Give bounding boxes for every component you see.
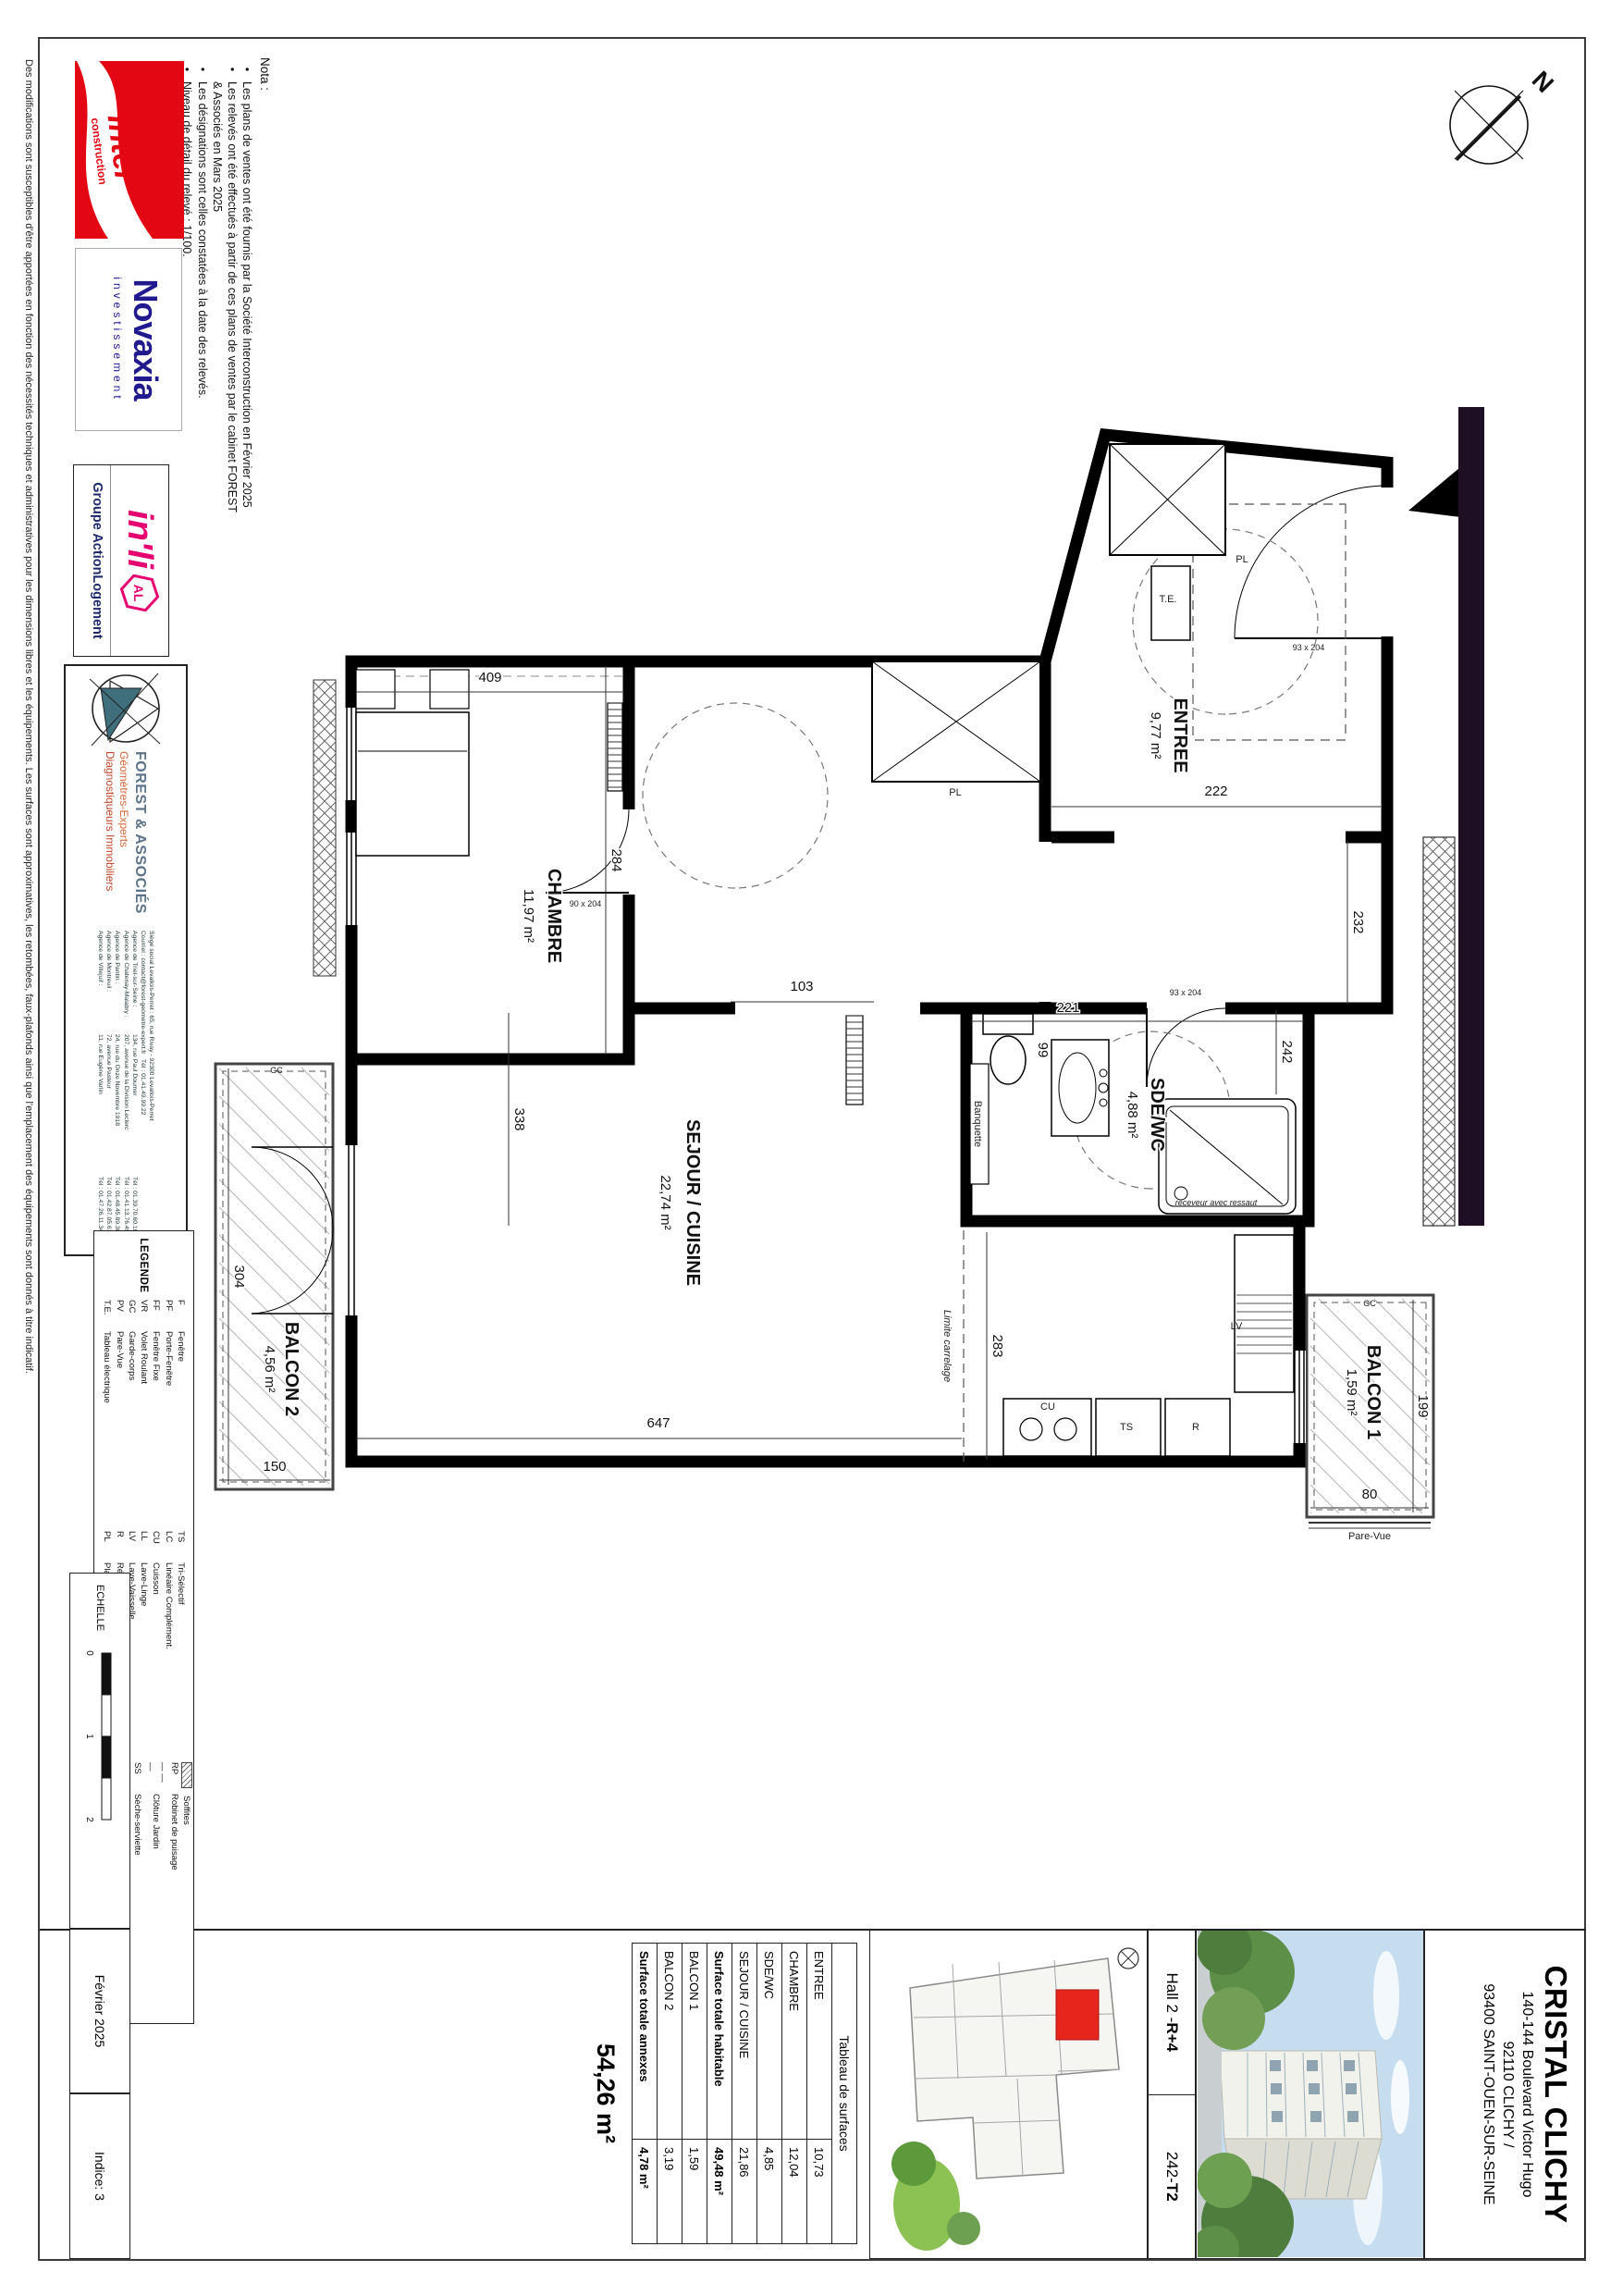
legend-col-1: FFenêtre PFPorte-Fenêtre FFFenêtre Fixe … — [101, 1300, 187, 1531]
label-door-sde: 93 x 204 — [1170, 988, 1202, 997]
nota-title: Nota : — [256, 57, 273, 686]
dim-647: 647 — [646, 1415, 670, 1431]
svg-text:2: 2 — [84, 1817, 94, 1822]
project-name: CRISTAL CLICHY — [1538, 1931, 1573, 2258]
forest-block: FOREST & ASSOCIÉS Géomètres-Experts Diag… — [64, 664, 188, 1256]
nota-line: Les plans de ventes ont été fournis par … — [240, 81, 254, 508]
project-address-2: 92110 CLICHY / — [1499, 1931, 1516, 2258]
dim-222: 222 — [1204, 784, 1227, 799]
label-receveur: receveur avec ressaut — [1175, 1198, 1258, 1207]
label-pl-hall: PL — [949, 787, 961, 798]
project-title-block: CRISTAL CLICHY 140-144 Boulevard Victor … — [1424, 1930, 1585, 2259]
label-sejour-area: 22,74 m² — [658, 1175, 673, 1229]
dim-283: 283 — [990, 1334, 1005, 1357]
nota-line: Les relevés ont été effectués à partir d… — [225, 81, 240, 512]
hall-lot-row: Hall 2 - R+4 242-T2 — [1148, 1930, 1196, 2259]
radiator-sejour — [846, 1016, 863, 1105]
svg-text:1: 1 — [84, 1734, 94, 1739]
label-pl-entree: PL — [1236, 554, 1248, 565]
label-chambre-area: 11,97 m² — [521, 889, 536, 943]
north-compass-icon: N — [1450, 66, 1559, 164]
north-label: N — [1527, 66, 1559, 98]
date-label: Février 2025 — [92, 1975, 107, 2048]
dim-150: 150 — [263, 1459, 286, 1475]
label-gc-balcon2: GC — [270, 1066, 283, 1075]
label-entree: ENTREE — [1170, 697, 1190, 772]
nota-line: Les désignations sont celles constatées … — [194, 81, 209, 399]
dim-199: 199 — [1415, 1394, 1431, 1417]
placard-entree — [1110, 444, 1225, 555]
grand-total: 54,26 m² — [591, 1943, 620, 2244]
label-chambre: CHAMBRE — [544, 869, 564, 963]
svg-text:AL: AL — [131, 585, 146, 602]
shower-icon — [1159, 1099, 1296, 1214]
logo-interconstruction: Inter construction — [75, 61, 184, 239]
building-photo — [1196, 1930, 1424, 2259]
label-door-entree: 93 x 204 — [1293, 643, 1325, 652]
label-ts: TS — [1120, 1422, 1133, 1433]
label-balcon1-area: 1,59 m² — [1344, 1369, 1359, 1416]
highlighted-unit — [1056, 1990, 1099, 2040]
date-box: Février 2025 — [69, 1929, 130, 2093]
dim-284: 284 — [609, 848, 624, 871]
dim-221: 221 — [1056, 1000, 1079, 1016]
dim-242: 242 — [1279, 1040, 1295, 1063]
nota-line: & Associés en Mars 2025 — [210, 81, 225, 212]
dim-304: 304 — [231, 1265, 247, 1288]
label-sde: SDE/WC — [1147, 1078, 1167, 1152]
forest-sub2: Diagnostiqueurs Immobiliers — [103, 751, 117, 931]
label-door-chambre: 90 x 204 — [570, 899, 602, 908]
window-balcon1 — [1293, 1351, 1306, 1443]
echelle-box: ECHELLE 0 1 2 — [69, 1573, 130, 1929]
surface-table-title: Tableau de surfaces — [832, 1944, 857, 2244]
label-limite-carrelage: Limite carrelage — [941, 1310, 953, 1382]
scale-bar: 0 1 2 — [81, 1644, 118, 1838]
hall-cell: Hall 2 - R+4 — [1148, 1930, 1196, 2095]
radiator-chambre — [608, 703, 622, 791]
sink-icon — [1051, 1040, 1109, 1136]
label-sejour: SEJOUR / CUISINE — [682, 1119, 703, 1286]
label-sde-area: 4,88 m² — [1125, 1092, 1140, 1139]
indice-label: Indice: 3 — [92, 2152, 107, 2201]
forest-name: FOREST & ASSOCIÉS — [130, 751, 149, 931]
party-wall — [1458, 407, 1484, 1226]
insulation-band-bottom — [314, 680, 336, 976]
label-te: T.E. — [1160, 594, 1177, 605]
drawing-sheet: N — [0, 0, 1623, 2296]
inli-text: in'li — [120, 510, 160, 569]
logo-inli: in'li AL Groupe ActionLogement — [73, 464, 169, 657]
nota-block: Nota : •Les plans de ventes ont été four… — [179, 57, 273, 686]
label-lv: LV — [1231, 1321, 1243, 1332]
legend-title: LEGENDE — [139, 1231, 150, 1300]
key-plan — [869, 1930, 1148, 2259]
logo-novaxia: Novaxia investissement — [75, 248, 182, 431]
forest-contact: Siège social Levallois-Perret : 65, rue … — [96, 931, 155, 1254]
inli-al-hexagon-icon: AL — [119, 574, 160, 611]
dim-103: 103 — [790, 979, 813, 994]
indice-box: Indice: 3 — [69, 2093, 130, 2259]
disclaimer-text: Des modifications sont susceptibles d'êt… — [23, 59, 34, 2224]
forest-sub1: Géomètres-Experts — [117, 751, 130, 931]
groupe-actionlogement-text: Groupe ActionLogement — [90, 465, 111, 656]
insulation-band-top — [1423, 837, 1455, 1226]
room-corridor — [1045, 837, 1387, 1008]
svg-text:0: 0 — [84, 1650, 94, 1656]
dim-409: 409 — [478, 670, 501, 685]
label-cu: CU — [1040, 1401, 1055, 1413]
soffites-swatch — [181, 1762, 192, 1788]
novaxia-subtext: investissement — [111, 249, 124, 430]
placard-hall — [872, 661, 1040, 782]
label-balcon2-area: 4,56 m² — [262, 1346, 277, 1393]
label-balcon1: BALCON 1 — [1363, 1345, 1383, 1439]
forest-logo-icon — [75, 666, 177, 751]
label-r: R — [1192, 1422, 1199, 1433]
dim-80: 80 — [1362, 1487, 1378, 1502]
label-pare-vue: Pare-Vue — [1348, 1531, 1391, 1542]
surface-table: Tableau de surfaces ENTREE10,73 CHAMBRE1… — [632, 1943, 857, 2244]
echelle-label: ECHELLE — [94, 1585, 105, 1631]
label-balcon2: BALCON 2 — [281, 1322, 301, 1416]
dim-99: 99 — [1035, 1043, 1051, 1058]
project-address-3: 93400 SAINT-OUEN-SUR-SEINE — [1480, 1931, 1496, 2258]
label-gc-balcon1: GC — [1363, 1299, 1376, 1308]
lot-cell: 242-T2 — [1148, 2095, 1196, 2260]
novaxia-text: Novaxia — [126, 249, 165, 430]
dim-338: 338 — [511, 1107, 527, 1130]
label-banquette: Banquette — [972, 1101, 983, 1147]
project-address-1: 140-144 Boulevard Victor Hugo — [1518, 1931, 1535, 2258]
label-entree-area: 9,77 m² — [1148, 712, 1163, 759]
dim-232: 232 — [1350, 910, 1366, 933]
